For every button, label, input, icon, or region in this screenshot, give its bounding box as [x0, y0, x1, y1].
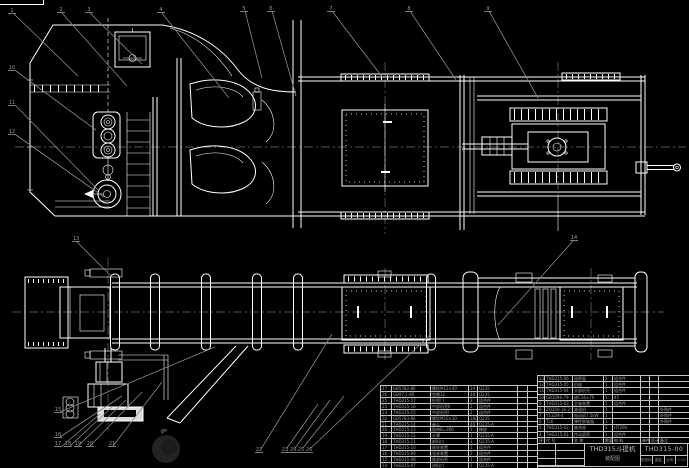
frame-corner	[0, 0, 44, 5]
head-plan	[25, 269, 122, 359]
inlet-chute	[167, 346, 248, 423]
bom-cell: 材 料	[612, 437, 640, 443]
title-info-row: 阶段标记 重量 比例 1:10	[641, 455, 687, 464]
bom-cell: 进料口	[430, 462, 468, 468]
inspection-door-plan	[342, 271, 430, 357]
direction-arrow	[84, 190, 93, 198]
bom-cell	[517, 462, 527, 468]
bom-cell: THD315-07	[391, 462, 430, 468]
bom-table-right: 13THD315-06观察窗2组合件12THD315-05机座1组合件11THD…	[537, 375, 689, 444]
tail-plan	[463, 272, 647, 359]
bom-cell: 单件	[640, 437, 649, 443]
drawing-number-cell: THD315-00 阶段标记 重量 比例 1:10	[641, 444, 687, 466]
tail-takeup-assembly	[462, 77, 681, 231]
bucket-shapes	[190, 80, 274, 204]
revision-grid	[538, 444, 585, 466]
bom-cell: 数量	[603, 437, 612, 443]
bom-cell	[527, 462, 537, 468]
bom-cell: Q235-A	[477, 462, 517, 468]
bom-table-left: 27GB5782-86螺栓M12×4024Q23526GB97.1-85垫圈12…	[380, 385, 538, 468]
roller-box	[93, 112, 120, 158]
product-title: THD315斗提机	[585, 444, 640, 455]
bom-cell: 代 号	[544, 437, 572, 443]
bom-cell: 14	[380, 462, 391, 468]
cad-drawing-sheet: 1 2 3 4 5 6 7 8 9 10 11 12 13 14 15 16 1…	[0, 0, 689, 468]
bom-cell: 备注	[658, 437, 689, 443]
watermark-logo	[152, 429, 180, 463]
info-cell: 1:10	[675, 455, 687, 464]
title-block: THD315斗提机 装配图 THD315-00 阶段标记 重量 比例 1:10	[537, 443, 688, 467]
drawing-number: THD315-00	[641, 444, 687, 455]
bom-cell: 1	[468, 462, 477, 468]
info-cell: 比例	[664, 455, 676, 464]
inspection-door-front	[342, 104, 428, 192]
bom-cell: 总计	[649, 437, 658, 443]
info-cell: 阶段标记	[641, 455, 652, 464]
bom-cell: 名 称	[572, 437, 603, 443]
drawing-title-cell: THD315斗提机 装配图	[585, 444, 641, 466]
info-cell: 重量	[652, 455, 664, 464]
bom-cell: 序号	[537, 437, 544, 443]
front-view	[27, 18, 681, 231]
drawing-type: 装配图	[585, 455, 640, 464]
